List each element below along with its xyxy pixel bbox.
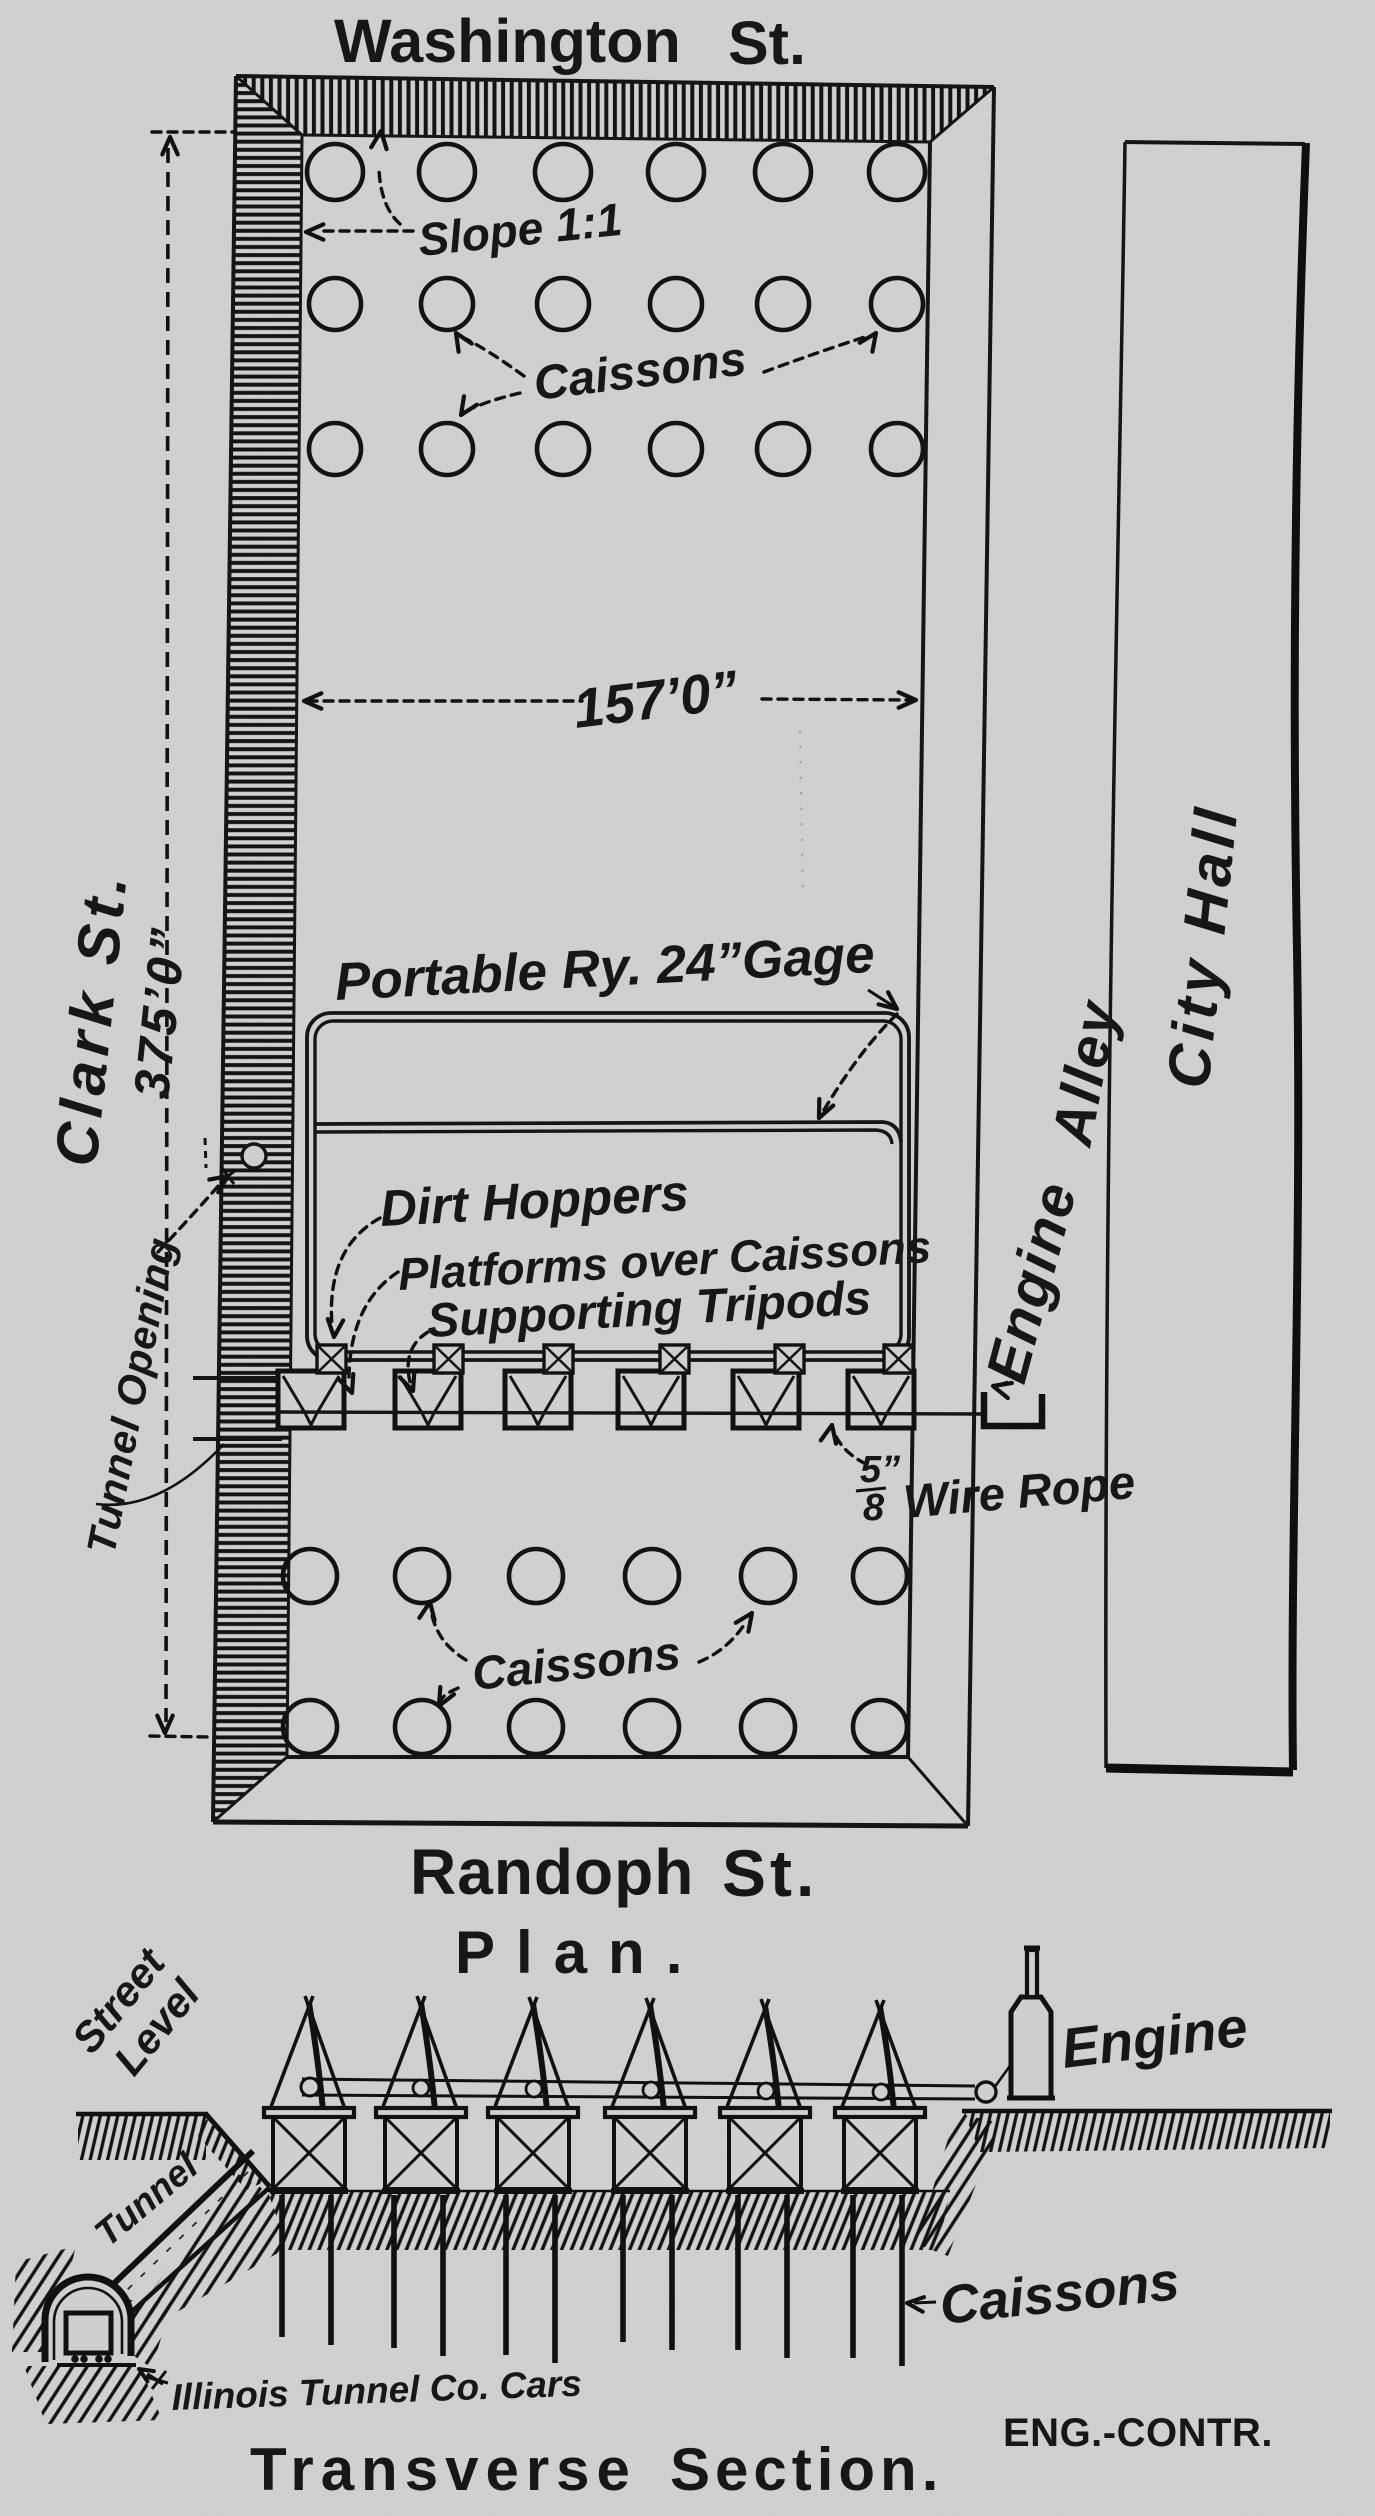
- svg-text:Plan.: Plan.: [455, 1919, 703, 1986]
- svg-text:St.: St.: [722, 1836, 818, 1910]
- svg-text:Section.: Section.: [670, 2436, 943, 2503]
- svg-text:Transverse: Transverse: [250, 2436, 637, 2503]
- svg-text:St.: St.: [728, 9, 806, 77]
- svg-text:Washington: Washington: [334, 7, 681, 75]
- svg-text:ENG.-CONTR.: ENG.-CONTR.: [1003, 2411, 1273, 2455]
- svg-text:8: 8: [863, 1487, 885, 1529]
- svg-text:5”: 5”: [860, 1449, 900, 1491]
- svg-text:Randoph: Randoph: [410, 1836, 694, 1908]
